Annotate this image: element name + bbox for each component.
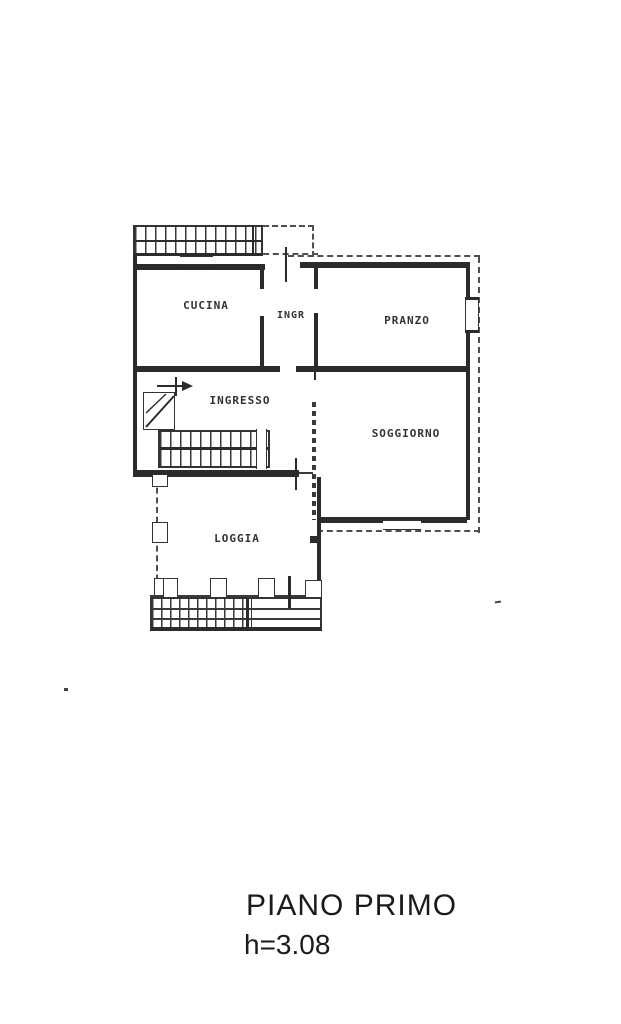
room-label-cucina: CUCINA [176,299,236,312]
room-label-ingresso: INGRESSO [202,394,278,407]
landing-door-mark-icon [295,458,297,490]
staircase-stringer-line [160,447,268,450]
soggiorno-bottom-outer-dashed [317,530,480,532]
room-label-pranzo: PRANZO [374,314,440,327]
railing-pillar-1 [163,578,178,598]
scanned-floor-plan-page: CUCINA INGR PRANZO INGRESSO SOGGIORNO LO… [0,0,621,1024]
staircase-end-cap [256,429,267,469]
railing-hatch [152,599,252,627]
plan-height-note: h=3.08 [244,929,330,961]
loggia-railing-icon [150,597,322,631]
soggiorno-left-wall-dotted [312,402,316,520]
railing-pillar-2 [210,578,227,598]
internal-staircase-icon [158,430,270,468]
room-label-loggia: LOGGIA [206,532,268,545]
stair-direction-arrow-icon [0,0,621,1024]
plan-title: PIANO PRIMO [246,889,457,923]
room-label-ingr: INGR [268,310,314,321]
loggia-left-pillar-top [152,474,168,487]
soggiorno-bottom-door-icon [383,520,421,530]
railing-rail-line-2 [152,618,320,620]
railing-pillar-3 [258,578,275,598]
railing-rail-line-1 [152,608,320,610]
loggia-door-mark-icon [288,576,291,608]
railing-divider [246,599,249,627]
loggia-left-pillar-mid [152,522,168,543]
loggia-right-wall-jog [310,536,321,543]
scan-speck-left [64,688,68,691]
landing-thin-line [299,472,313,474]
room-label-soggiorno: SOGGIORNO [360,427,452,440]
